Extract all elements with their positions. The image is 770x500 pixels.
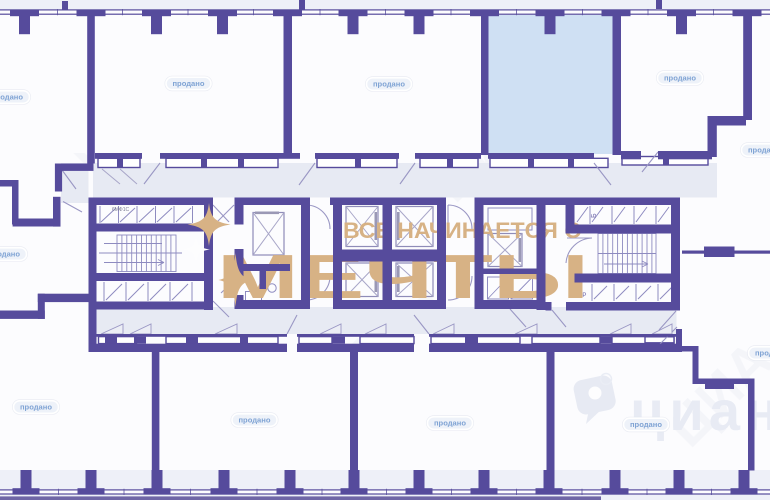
svg-text:продано: продано <box>373 80 405 89</box>
svg-text:продано: продано <box>172 79 204 88</box>
svg-text:продано: продано <box>630 420 662 429</box>
svg-text:Б: Б <box>591 213 598 218</box>
svg-text:продано: продано <box>238 416 270 425</box>
svg-text:продано: продано <box>20 403 52 412</box>
svg-text:продано: продано <box>748 146 770 155</box>
svg-text:продано: продано <box>0 250 20 259</box>
svg-text:продано: продано <box>434 419 466 428</box>
svg-text:продано: продано <box>755 349 770 358</box>
svg-text:6МФ1С: 6МФ1С <box>112 207 129 213</box>
svg-text:продано: продано <box>664 74 696 83</box>
svg-text:продано: продано <box>0 93 23 102</box>
